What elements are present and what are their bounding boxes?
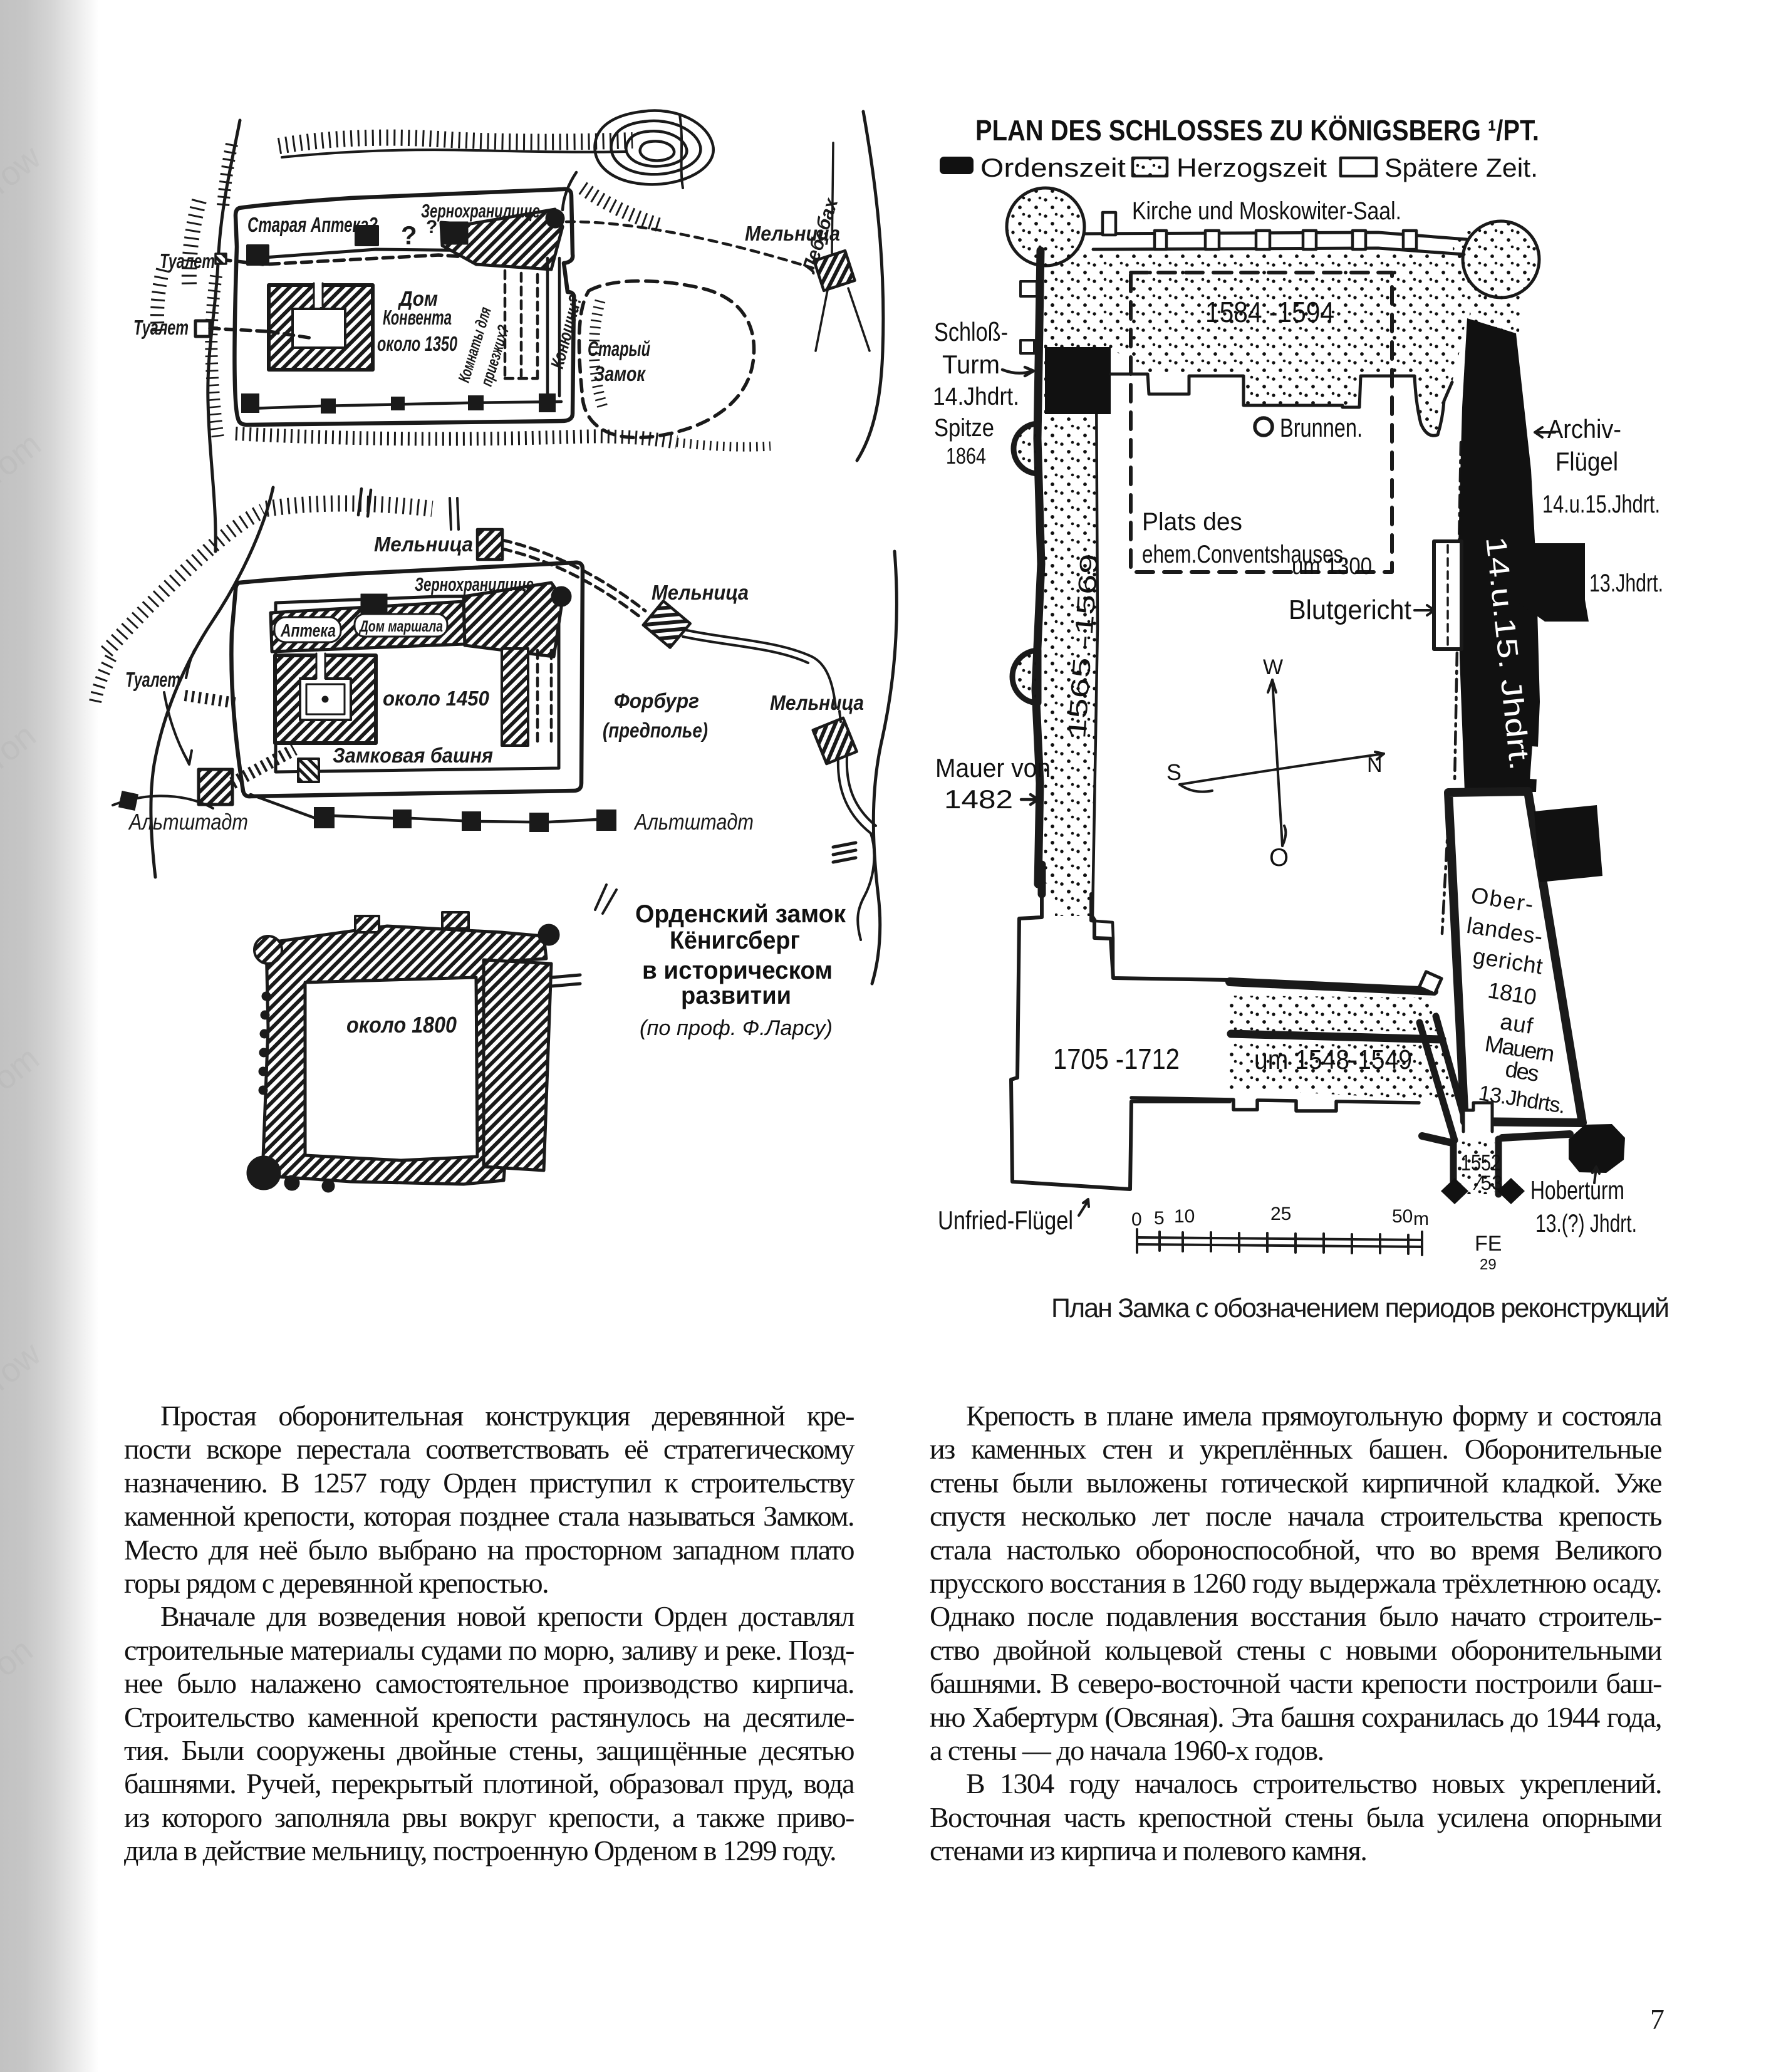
svg-text:Spätere Zeit.: Spätere Zeit. bbox=[1384, 153, 1538, 182]
svg-text:Turm: Turm bbox=[942, 350, 1000, 379]
svg-text:um 1548-1549: um 1548-1549 bbox=[1254, 1044, 1412, 1075]
svg-text:Hoberturm: Hoberturm bbox=[1530, 1175, 1624, 1205]
svg-text:Орденский замок: Орденский замок bbox=[635, 900, 846, 928]
svg-text:Старый: Старый bbox=[588, 337, 650, 360]
svg-text:Альтштадт: Альтштадт bbox=[633, 809, 754, 835]
svg-text:Зернохранилище: Зернохранилище bbox=[421, 200, 540, 222]
svg-text:Spitze: Spitze bbox=[934, 414, 994, 442]
svg-text:13.Jhdrt.: 13.Jhdrt. bbox=[1589, 570, 1663, 597]
svg-text:29: 29 bbox=[1480, 1256, 1497, 1273]
svg-text:FE: FE bbox=[1475, 1232, 1502, 1256]
svg-text:m: m bbox=[1413, 1209, 1429, 1229]
svg-text:Kirche und Moskowiter-Saal.: Kirche und Moskowiter-Saal. bbox=[1132, 197, 1401, 225]
svg-text:Unfried-Flügel: Unfried-Flügel bbox=[938, 1205, 1073, 1235]
svg-text:Flügel: Flügel bbox=[1555, 447, 1618, 476]
svg-text:0: 0 bbox=[1131, 1209, 1142, 1230]
svg-text:в историческом: в историческом bbox=[642, 957, 833, 984]
svg-text:Schloß-: Schloß- bbox=[934, 317, 1008, 346]
svg-text:Ordenszeit: Ordenszeit bbox=[980, 153, 1126, 182]
svg-text:Конвента: Конвента bbox=[383, 306, 452, 329]
svg-text:около 1450: около 1450 bbox=[383, 687, 490, 710]
svg-text:Старая Аптека?: Старая Аптека? bbox=[247, 213, 378, 236]
svg-text:Plats des: Plats des bbox=[1142, 508, 1242, 536]
svg-text:Archiv-: Archiv- bbox=[1547, 414, 1621, 444]
svg-text:около 1800: около 1800 bbox=[346, 1012, 457, 1038]
svg-text:?: ? bbox=[401, 221, 417, 250]
svg-text:Замок: Замок bbox=[594, 362, 647, 385]
svg-text:des: des bbox=[1503, 1056, 1541, 1086]
svg-text:Туалет: Туалет bbox=[160, 249, 215, 273]
svg-text:13.(?) Jhdrt.: 13.(?) Jhdrt. bbox=[1535, 1210, 1637, 1237]
svg-text:Альтштадт: Альтштадт bbox=[128, 809, 248, 835]
svg-text:Мельница: Мельница bbox=[374, 533, 473, 556]
svg-text:Замковая башня: Замковая башня bbox=[333, 744, 493, 767]
svg-text:Мельница: Мельница bbox=[770, 691, 864, 714]
svg-text:PLAN DES SCHLOSSES ZU KÖNIGSBE: PLAN DES SCHLOSSES ZU KÖNIGSBERG ¹/PT. bbox=[975, 114, 1539, 147]
svg-text:um 1300: um 1300 bbox=[1292, 553, 1372, 580]
svg-text:(предполье): (предполье) bbox=[603, 719, 708, 742]
svg-text:Туалет: Туалет bbox=[133, 316, 189, 339]
svg-text:14.Jhdrt.: 14.Jhdrt. bbox=[933, 383, 1019, 410]
svg-text:Туалет: Туалет bbox=[125, 668, 180, 691]
svg-text:N: N bbox=[1367, 753, 1383, 777]
svg-text:1864: 1864 bbox=[946, 443, 986, 469]
svg-text:Кёнигсберг: Кёнигсберг bbox=[670, 927, 800, 954]
svg-text:около 1350: около 1350 bbox=[377, 332, 457, 355]
svg-text:S: S bbox=[1166, 759, 1181, 785]
svg-text:Форбург: Форбург bbox=[614, 689, 699, 712]
svg-text:O: O bbox=[1269, 844, 1289, 872]
svg-text:Мельница: Мельница bbox=[652, 581, 749, 604]
svg-text:Мельница: Мельница bbox=[745, 222, 840, 245]
svg-text:(по проф. Ф.Ларсу): (по проф. Ф.Ларсу) bbox=[640, 1016, 833, 1040]
svg-text:1482: 1482 bbox=[944, 784, 1013, 814]
svg-text:14.u.15.Jhdrt.: 14.u.15.Jhdrt. bbox=[1542, 491, 1660, 518]
svg-text:Зернохранилище: Зернохранилище bbox=[415, 573, 534, 595]
svg-text:50: 50 bbox=[1392, 1206, 1413, 1227]
svg-text:Herzogszeit: Herzogszeit bbox=[1176, 153, 1327, 182]
svg-text:W: W bbox=[1263, 655, 1283, 679]
svg-text:Mauer von: Mauer von bbox=[935, 753, 1051, 783]
svg-text:5: 5 bbox=[1154, 1208, 1165, 1229]
svg-text:Blutgericht: Blutgericht bbox=[1289, 595, 1411, 625]
svg-text:25: 25 bbox=[1270, 1204, 1291, 1224]
svg-text:1705 -1712: 1705 -1712 bbox=[1053, 1043, 1180, 1075]
svg-text:Аптека: Аптека bbox=[280, 621, 336, 641]
svg-text:10: 10 bbox=[1174, 1206, 1195, 1227]
svg-text:развитии: развитии bbox=[681, 982, 791, 1009]
svg-text:1584 -1594: 1584 -1594 bbox=[1205, 296, 1334, 328]
svg-text:Дом маршала: Дом маршала bbox=[358, 618, 443, 635]
svg-text:Brunnen.: Brunnen. bbox=[1280, 413, 1363, 442]
